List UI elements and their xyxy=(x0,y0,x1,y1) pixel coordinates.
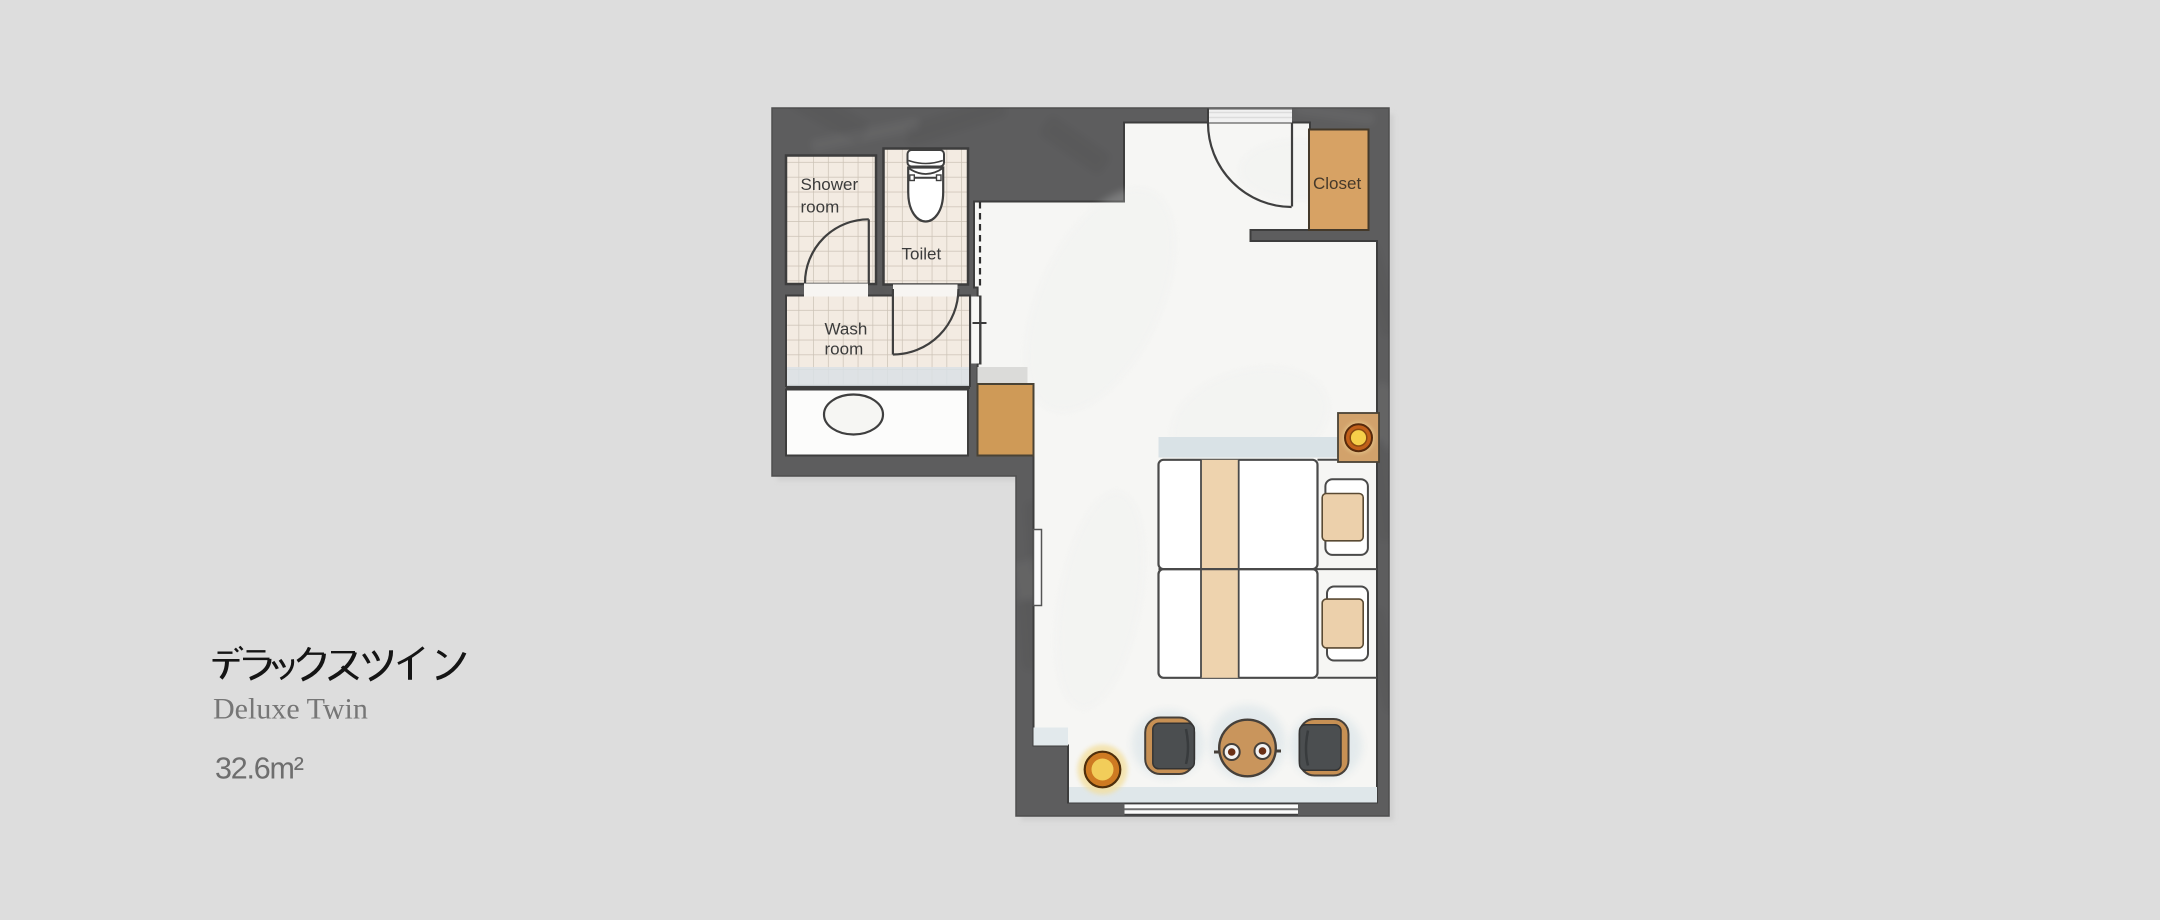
svg-text:room: room xyxy=(801,198,840,217)
svg-text:Wash: Wash xyxy=(825,320,868,339)
svg-text:Deluxe Twin: Deluxe Twin xyxy=(213,693,368,726)
svg-text:Toilet: Toilet xyxy=(902,245,942,264)
svg-text:Closet: Closet xyxy=(1313,174,1361,193)
svg-text:32.6m²: 32.6m² xyxy=(215,752,304,786)
svg-text:room: room xyxy=(825,340,864,359)
svg-text:Shower: Shower xyxy=(801,175,859,194)
